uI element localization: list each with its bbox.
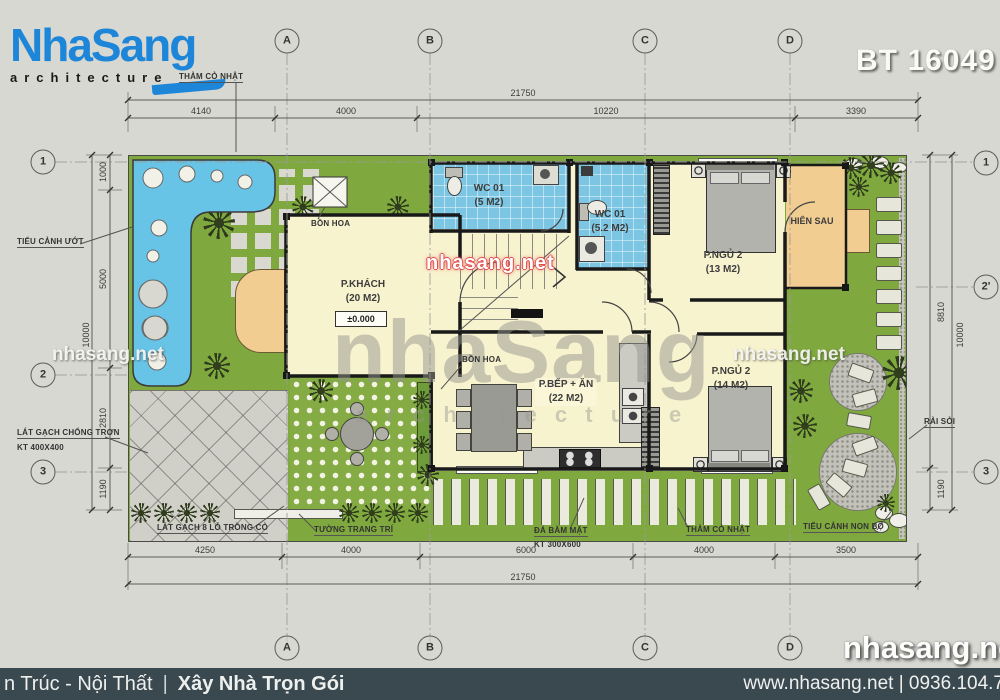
dim-left-seg-3: 2810 xyxy=(98,408,108,428)
footer-divider: | xyxy=(163,673,168,695)
room-name: HIÊN SAU xyxy=(790,215,833,228)
dim-bottom-seg-3: 6000 xyxy=(516,545,536,555)
room-name: WC 01 xyxy=(474,182,505,196)
grid-bubble-bottom-a: A xyxy=(275,636,300,661)
dim-left-seg-2: 5000 xyxy=(98,269,108,289)
note-grass-brick: LÁT GẠCH 8 LỖ TRỒNG CỎ xyxy=(157,523,268,534)
note-hammered-stone-size: KT 300X600 xyxy=(534,540,581,549)
room-name: P.BẾP + ĂN xyxy=(535,378,597,392)
room-label-bed2: P.NGỦ 2 (14 M2) xyxy=(712,365,751,393)
room-label-wc2: WC 01 (5.2 M2) xyxy=(591,208,628,236)
dimension-lines xyxy=(86,92,958,590)
grid-bubble-bottom-c: C xyxy=(633,636,658,661)
footer-services-text: n Trúc - Nội Thất xyxy=(4,673,153,695)
note-antislip-tile: LÁT GẠCH CHỐNG TRƠN xyxy=(17,428,120,439)
room-name: P.NGỦ 2 xyxy=(704,249,743,263)
grid-bubble-bottom-b: B xyxy=(418,636,443,661)
room-area: (22 M2) xyxy=(535,392,597,406)
grid-bubble-bottom-d: D xyxy=(778,636,803,661)
dim-left-seg-4: 1190 xyxy=(98,479,108,498)
dim-top-overall: 21750 xyxy=(510,88,535,98)
note-planter-top: BỒN HOA xyxy=(311,219,350,228)
floor-plan-sheet: nhaSang a r c h i t e c t u r e NhaSang … xyxy=(0,0,1000,700)
dim-bottom-seg-4: 4000 xyxy=(694,545,714,555)
grid-bubble-left-3: 3 xyxy=(31,460,56,485)
grid-bubble-top-b: B xyxy=(418,29,443,54)
dim-top-seg-1: 4140 xyxy=(191,106,211,116)
leader-lines xyxy=(80,82,927,531)
footer-slogan: Xây Nhà Trọn Gói xyxy=(178,673,345,695)
project-code: BT 16049 xyxy=(856,44,996,78)
watermark-right: nhasang.net xyxy=(733,344,845,366)
note-deco-wall: TƯỜNG TRANG TRÍ xyxy=(314,525,393,536)
room-area: (20 M2) xyxy=(341,292,385,306)
grid-bubble-left-2: 2 xyxy=(31,363,56,388)
level-marker: ±0.000 xyxy=(335,311,387,327)
room-label-bed1: P.NGỦ 2 (13 M2) xyxy=(704,249,743,277)
watermark-corner: nhasang.net xyxy=(843,630,1000,666)
dim-left-seg-1: 1000 xyxy=(98,162,108,182)
grid-bubble-right-1: 1 xyxy=(974,151,999,176)
watermark-left: nhasang.net xyxy=(52,344,164,366)
dim-bottom-seg-2: 4000 xyxy=(341,545,361,555)
room-area: (14 M2) xyxy=(712,379,751,393)
note-wet-garden: TIỂU CẢNH ƯỚT xyxy=(17,237,84,248)
footer-bar: n Trúc - Nội Thất|Xây Nhà Trọn Gói www.n… xyxy=(0,668,1000,700)
room-area: (5 M2) xyxy=(474,196,505,210)
room-name: P.KHÁCH xyxy=(341,278,385,292)
dim-top-seg-2: 4000 xyxy=(336,106,356,116)
room-label-wc1: WC 01 (5 M2) xyxy=(474,182,505,210)
grid-bubble-right-3: 3 xyxy=(974,460,999,485)
note-antislip-tile-size: KT 400X400 xyxy=(17,443,64,452)
dim-top-seg-3: 10220 xyxy=(593,106,618,116)
dim-bottom-seg-5: 3500 xyxy=(836,545,856,555)
dim-right-seg-1: 8810 xyxy=(936,302,946,322)
dimension-ticks xyxy=(89,97,955,587)
room-label-living: P.KHÁCH (20 M2) xyxy=(341,278,385,306)
room-name: P.NGỦ 2 xyxy=(712,365,751,379)
watermark-center: nhasang.net xyxy=(426,252,555,275)
note-rockery: TIỂU CẢNH NON BỘ xyxy=(803,522,884,533)
dim-right-seg-2: 1190 xyxy=(936,479,946,498)
footer-left: n Trúc - Nội Thất|Xây Nhà Trọn Gói xyxy=(4,673,344,696)
grid-bubble-right-2p: 2' xyxy=(974,275,999,300)
grid-bubble-left-1: 1 xyxy=(31,150,56,175)
dim-bottom-seg-1: 4250 xyxy=(195,545,215,555)
note-grass-top: THẢM CỎ NHẬT xyxy=(179,72,243,83)
room-area: (13 M2) xyxy=(704,263,743,277)
grid-bubble-top-a: A xyxy=(275,29,300,54)
grid-bubble-top-d: D xyxy=(778,29,803,54)
footer-contact: www.nhasang.net | 0936.104.7 xyxy=(743,673,1000,695)
dim-top-seg-4: 3390 xyxy=(846,106,866,116)
note-gravel: RẢI SỎI xyxy=(924,417,955,428)
room-name: WC 01 xyxy=(591,208,628,222)
room-label-porch: HIÊN SAU xyxy=(790,215,833,228)
room-area: (5.2 M2) xyxy=(591,222,628,236)
dim-bottom-overall: 21750 xyxy=(510,572,535,582)
note-planter-kitchen: BỒN HOA xyxy=(462,355,501,364)
brand-name: NhaSang xyxy=(10,22,250,68)
note-hammered-stone: ĐÁ BĂM MẶT xyxy=(534,526,588,537)
grid-bubble-top-c: C xyxy=(633,29,658,54)
room-label-kitchen: P.BẾP + ĂN (22 M2) xyxy=(535,378,597,406)
note-grass-bottom: THẢM CỎ NHẬT xyxy=(686,525,750,536)
dim-right-overall: 10000 xyxy=(955,322,965,347)
